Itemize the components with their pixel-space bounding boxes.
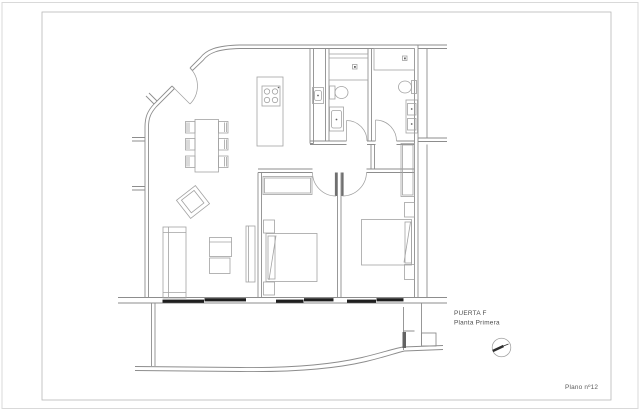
north-compass-icon <box>492 338 511 357</box>
neighbour-unit-walls <box>418 49 447 304</box>
washbasin-1 <box>330 107 344 131</box>
window-bedroom-2 <box>347 298 404 303</box>
bathroom-1-fixtures <box>329 54 368 131</box>
bathroom-1-door <box>347 121 368 142</box>
floor-plan-svg: PUERTA F Planta Primera Plano nº12 <box>0 0 640 412</box>
kitchen-island <box>257 77 283 146</box>
drawing-frame <box>42 12 611 400</box>
plan-number-label: Plano nº12 <box>565 384 598 391</box>
toilet-1 <box>330 86 349 99</box>
terrace-end-enclosure <box>403 303 437 350</box>
toilet-2 <box>399 81 417 94</box>
bathroom-2-door <box>376 120 397 141</box>
window-living <box>163 298 247 303</box>
wardrobe-1 <box>263 177 312 195</box>
title-block: PUERTA F Planta Primera Plano nº12 <box>454 310 598 391</box>
coffee-table <box>210 238 232 274</box>
tv-sideboard <box>246 226 255 282</box>
nightstand-2a <box>405 203 415 218</box>
party-wall-stubs <box>118 93 157 303</box>
plan-sheet: PUERTA F Planta Primera Plano nº12 <box>0 0 640 412</box>
nightstand-1b <box>264 282 275 295</box>
vanity-2 <box>406 100 418 133</box>
entrance-door <box>172 68 197 104</box>
bedroom-2-furniture <box>362 144 415 280</box>
exterior-walls <box>145 45 447 303</box>
terrace <box>135 303 443 372</box>
page-edge <box>2 3 638 409</box>
window-bedroom-1 <box>276 298 334 303</box>
armchair <box>176 186 209 219</box>
dining-chairs <box>186 122 229 168</box>
wardrobe-2 <box>401 144 415 197</box>
bed-2 <box>362 220 412 266</box>
unit-label: PUERTA F <box>454 310 487 317</box>
bed-1 <box>266 234 317 282</box>
shower-1 <box>329 54 368 80</box>
nightstand-1a <box>264 220 275 233</box>
shower-2 <box>374 49 415 71</box>
bedroom-1-furniture <box>263 177 317 296</box>
cooktop-icon <box>264 87 279 103</box>
floor-label: Planta Primera <box>454 320 500 327</box>
sofa <box>163 227 186 298</box>
kitchen-wall-sink <box>313 88 324 104</box>
nightstand-2b <box>405 265 415 280</box>
bedroom-1-door <box>312 173 336 197</box>
dining-table <box>195 120 219 173</box>
bedroom-2-door <box>343 173 367 197</box>
